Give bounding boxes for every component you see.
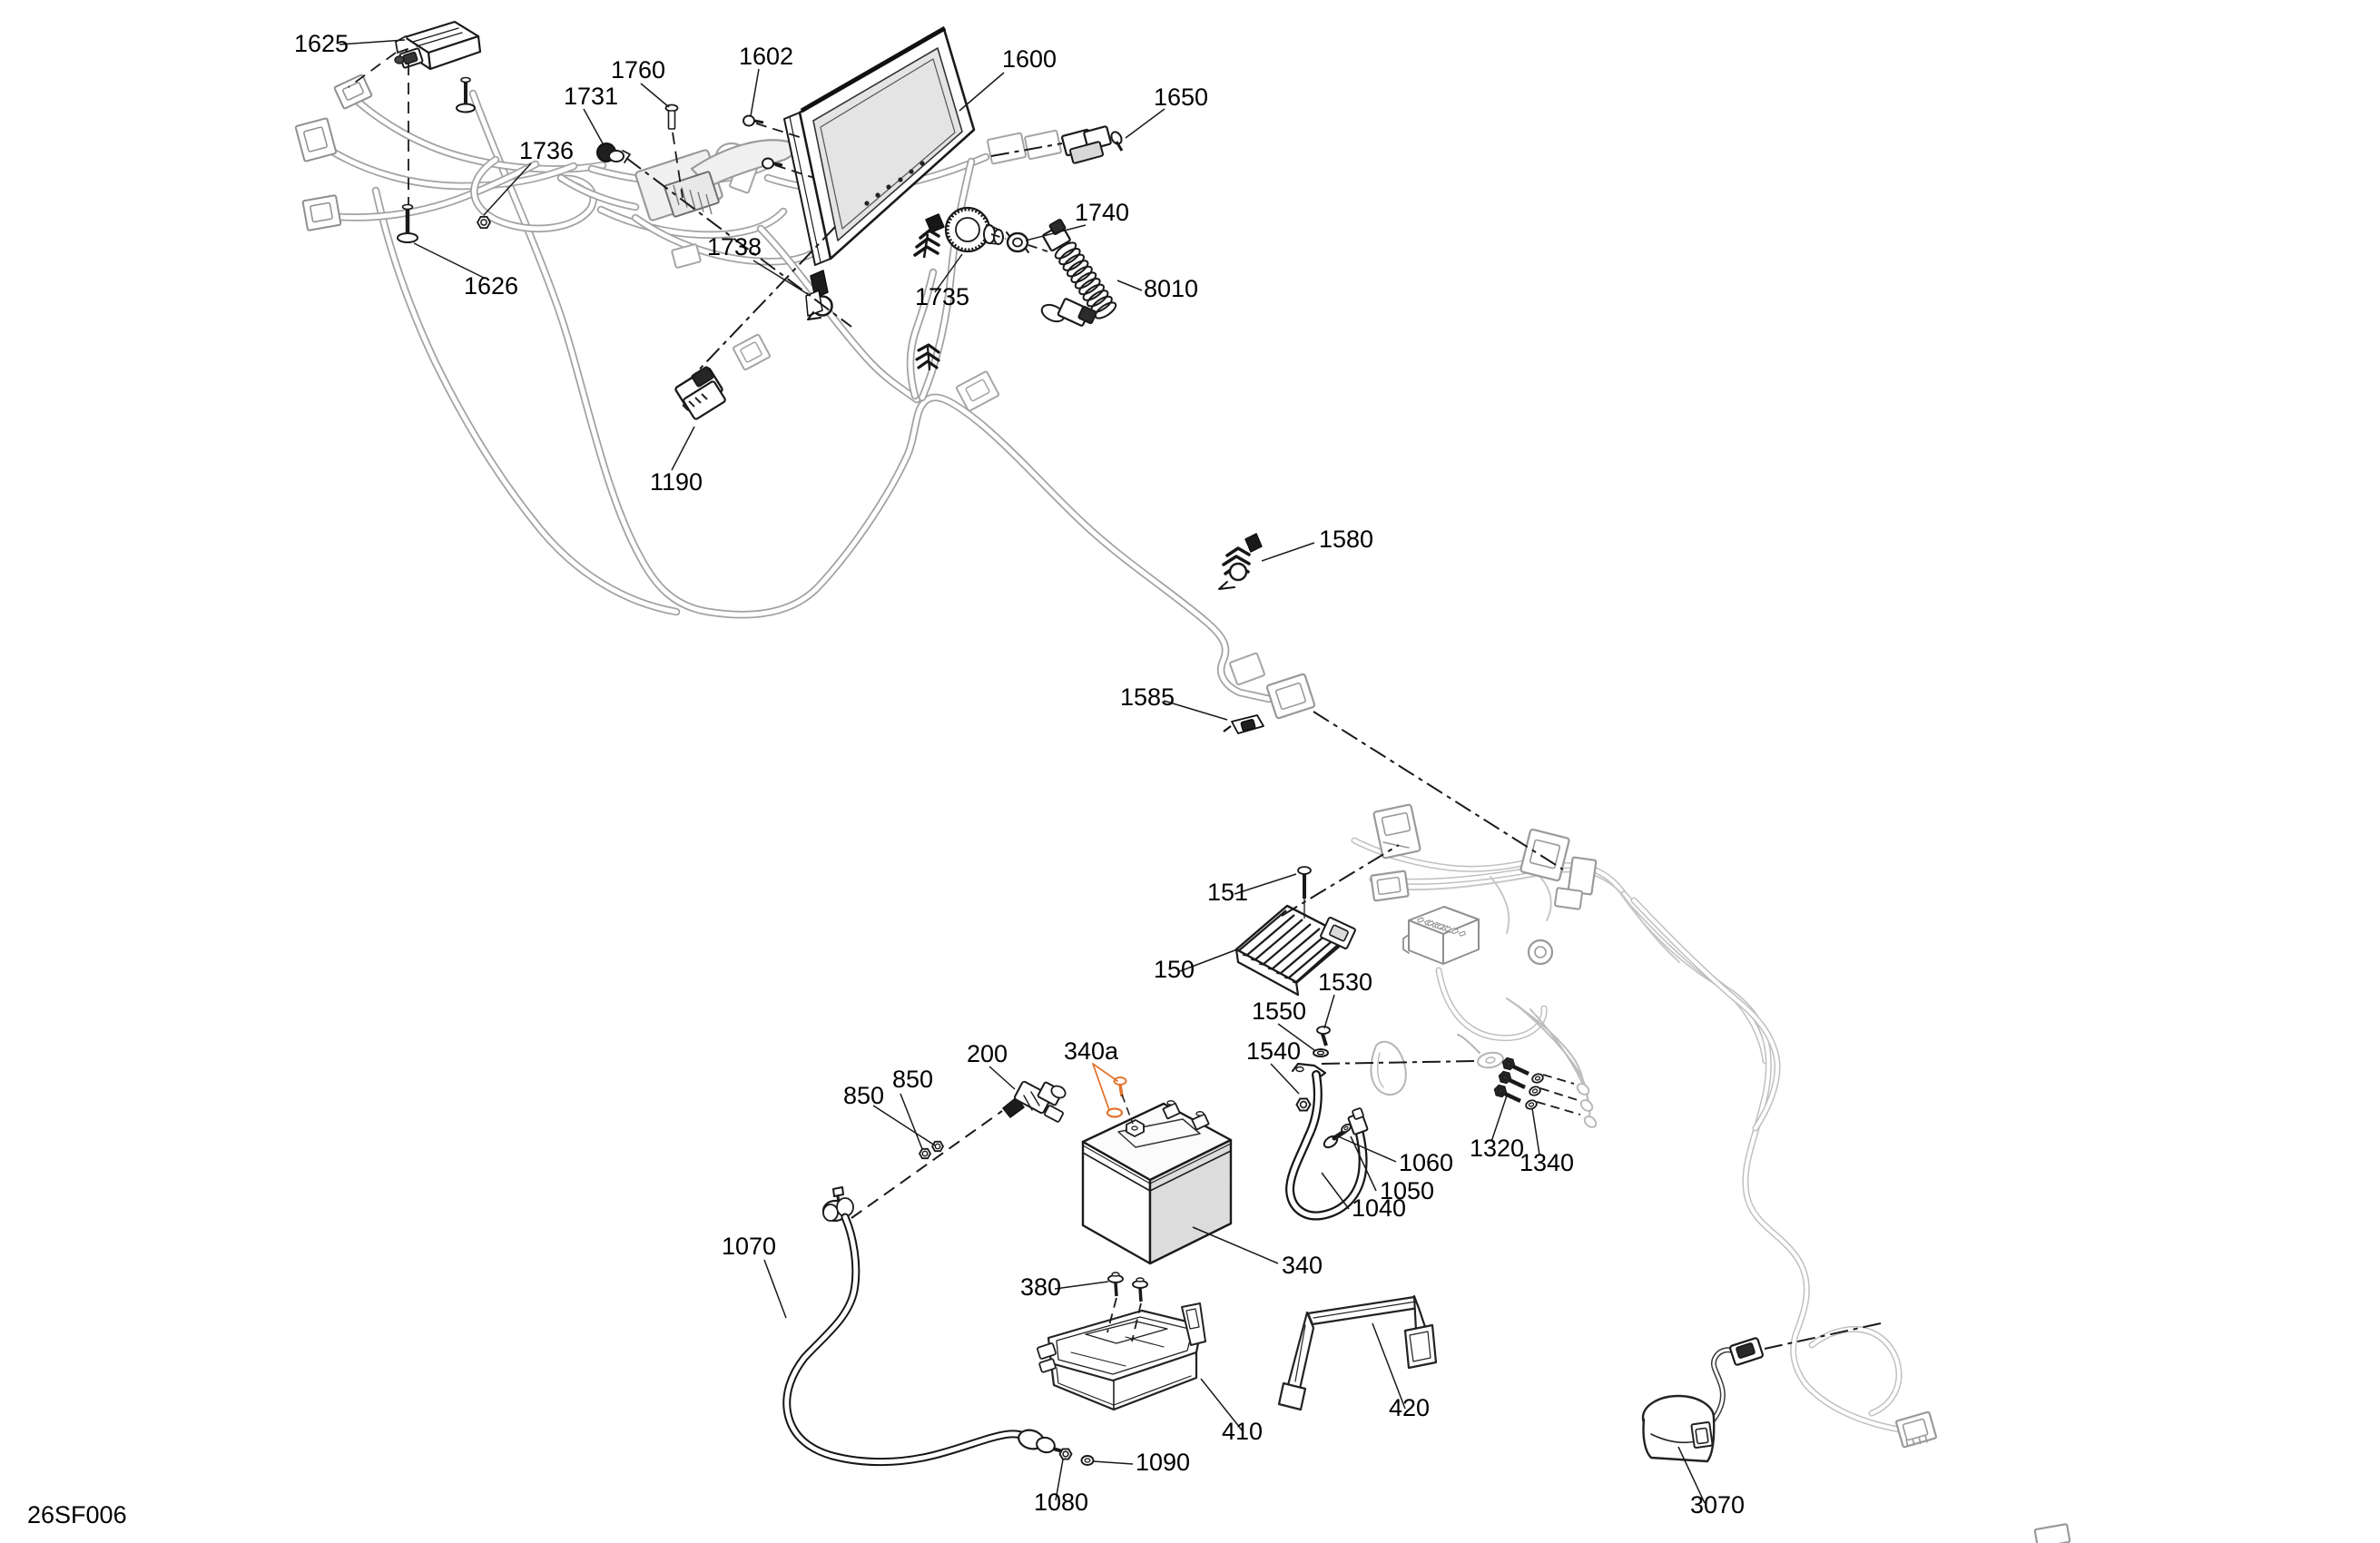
- svg-text:150: 150: [1154, 956, 1195, 983]
- svg-text:1585: 1585: [1120, 683, 1175, 711]
- svg-text:1070: 1070: [722, 1233, 776, 1260]
- svg-text:410: 410: [1222, 1418, 1263, 1445]
- svg-text:1550: 1550: [1252, 998, 1306, 1025]
- svg-text:1740: 1740: [1075, 199, 1129, 226]
- svg-text:1090: 1090: [1136, 1449, 1190, 1476]
- svg-text:26SF006: 26SF006: [27, 1501, 127, 1528]
- svg-text:8010: 8010: [1144, 275, 1198, 302]
- svg-text:151: 151: [1207, 879, 1248, 906]
- svg-text:340: 340: [1282, 1252, 1323, 1279]
- svg-text:1040: 1040: [1352, 1194, 1406, 1222]
- svg-text:850: 850: [892, 1066, 933, 1093]
- svg-text:1340: 1340: [1519, 1149, 1574, 1176]
- svg-text:1735: 1735: [915, 283, 969, 310]
- svg-text:340a: 340a: [1064, 1037, 1119, 1065]
- svg-text:1540: 1540: [1246, 1037, 1301, 1065]
- svg-text:1650: 1650: [1154, 84, 1208, 111]
- svg-text:1760: 1760: [611, 56, 665, 84]
- svg-text:1738: 1738: [707, 233, 762, 260]
- svg-text:1625: 1625: [294, 30, 349, 57]
- svg-text:1736: 1736: [519, 137, 574, 164]
- svg-text:1602: 1602: [739, 43, 793, 70]
- svg-text:3070: 3070: [1690, 1491, 1745, 1518]
- svg-text:1060: 1060: [1399, 1149, 1453, 1176]
- svg-text:1320: 1320: [1470, 1135, 1524, 1162]
- svg-text:1626: 1626: [464, 272, 518, 300]
- svg-text:1600: 1600: [1002, 45, 1057, 73]
- svg-text:200: 200: [967, 1040, 1008, 1067]
- svg-text:380: 380: [1020, 1273, 1061, 1301]
- svg-text:420: 420: [1389, 1394, 1430, 1421]
- svg-text:1530: 1530: [1318, 968, 1372, 996]
- svg-text:850: 850: [843, 1082, 884, 1109]
- svg-text:1190: 1190: [650, 468, 703, 496]
- svg-text:1080: 1080: [1034, 1489, 1088, 1516]
- svg-text:1580: 1580: [1319, 526, 1373, 553]
- svg-text:1731: 1731: [564, 83, 618, 110]
